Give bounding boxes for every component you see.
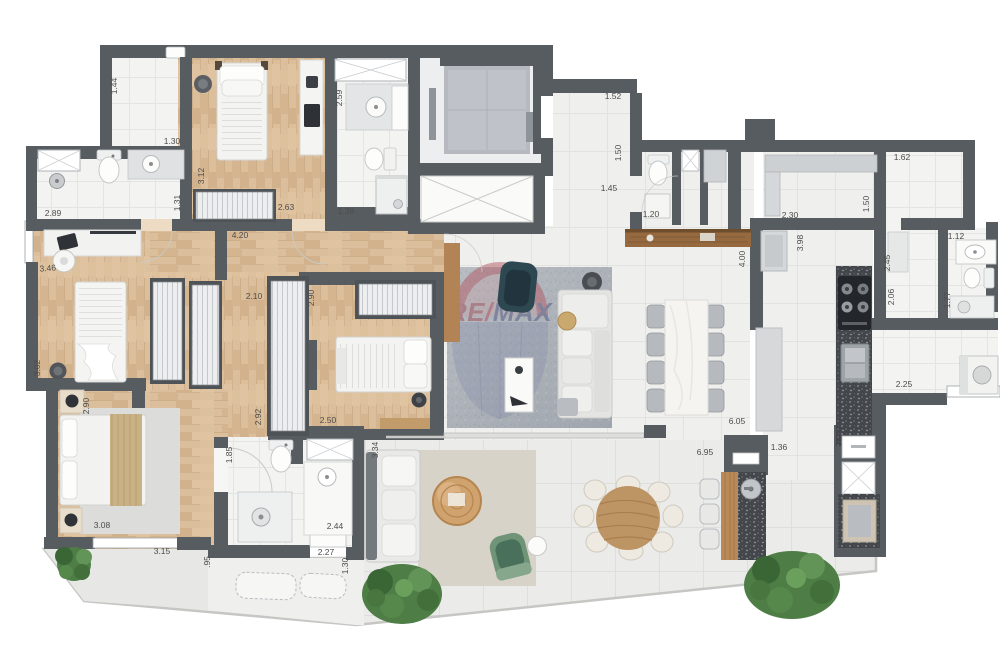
svg-text:1.31: 1.31 xyxy=(172,194,182,211)
svg-text:1.62: 1.62 xyxy=(894,152,911,162)
svg-text:3.34: 3.34 xyxy=(370,441,380,458)
svg-text:2.50: 2.50 xyxy=(320,415,337,425)
svg-text:2.59: 2.59 xyxy=(334,89,344,106)
svg-text:1.36: 1.36 xyxy=(771,442,788,452)
svg-text:3.15: 3.15 xyxy=(154,546,171,556)
svg-text:2.27: 2.27 xyxy=(318,547,335,557)
svg-text:1.20: 1.20 xyxy=(643,209,660,219)
svg-text:2.63: 2.63 xyxy=(278,202,295,212)
svg-text:3.08: 3.08 xyxy=(94,520,111,530)
svg-text:6.95: 6.95 xyxy=(697,447,714,457)
svg-text:2.25: 2.25 xyxy=(896,379,913,389)
svg-text:4.00: 4.00 xyxy=(737,250,747,267)
svg-text:2.92: 2.92 xyxy=(253,408,263,425)
svg-text:4.20: 4.20 xyxy=(232,230,249,240)
svg-text:3.02: 3.02 xyxy=(32,359,42,376)
svg-text:2.44: 2.44 xyxy=(327,521,344,531)
svg-text:2.06: 2.06 xyxy=(886,288,896,305)
svg-text:1.12: 1.12 xyxy=(948,231,965,241)
svg-text:3.98: 3.98 xyxy=(795,234,805,251)
svg-text:3.46: 3.46 xyxy=(39,262,56,273)
svg-text:1.44: 1.44 xyxy=(109,77,119,94)
svg-text:6.05: 6.05 xyxy=(729,416,746,426)
svg-text:2.10: 2.10 xyxy=(246,291,263,301)
svg-text:2.30: 2.30 xyxy=(782,210,799,220)
svg-text:1.45: 1.45 xyxy=(601,183,618,193)
svg-text:2.89: 2.89 xyxy=(45,208,62,218)
svg-text:1.30: 1.30 xyxy=(340,557,350,574)
svg-text:1.30: 1.30 xyxy=(164,136,181,146)
svg-text:.95: .95 xyxy=(202,556,212,568)
svg-text:2.45: 2.45 xyxy=(882,254,892,271)
svg-text:3.12: 3.12 xyxy=(196,167,206,184)
svg-text:1.52: 1.52 xyxy=(605,91,622,101)
svg-text:2.90: 2.90 xyxy=(81,397,91,414)
svg-text:1.50: 1.50 xyxy=(861,195,871,212)
svg-text:1.50: 1.50 xyxy=(613,144,623,161)
svg-text:1.85: 1.85 xyxy=(224,446,234,463)
svg-text:2.90: 2.90 xyxy=(306,289,316,306)
svg-text:1.77: 1.77 xyxy=(942,291,952,308)
svg-text:1.38: 1.38 xyxy=(338,206,355,216)
